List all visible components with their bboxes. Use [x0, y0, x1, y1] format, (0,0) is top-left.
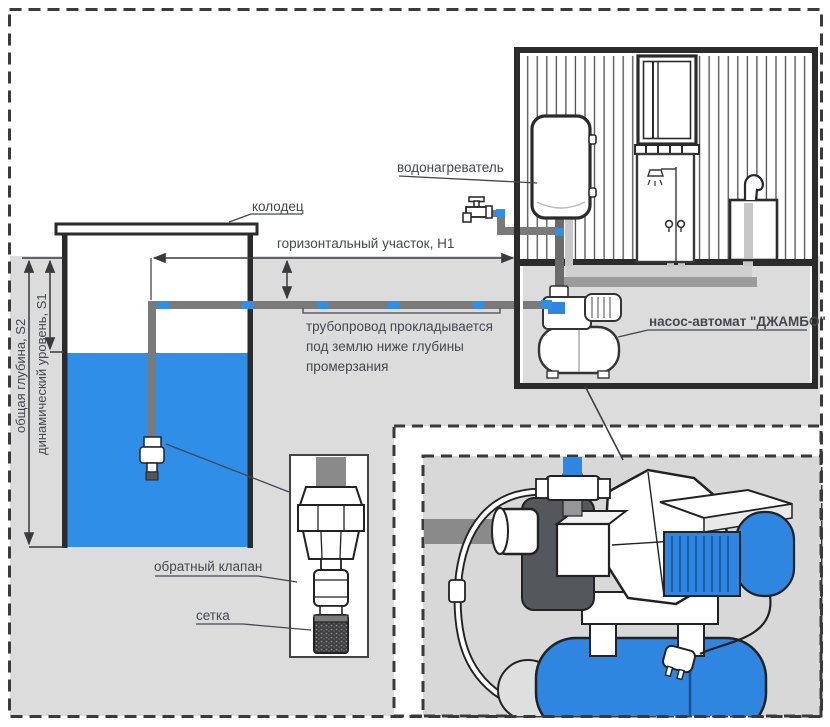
label-dynamic-level: динамический уровень, S1 [34, 293, 49, 455]
detail-motor-endcap [736, 512, 794, 596]
well-wall-right [248, 233, 254, 548]
heater-pipe-blue-mark [555, 228, 564, 236]
water-heater [532, 116, 596, 218]
detail-pressure-tank [536, 638, 766, 727]
label-pump-station: насос-автомат "ДЖАМБО" [649, 314, 826, 329]
house [463, 47, 818, 389]
label-pipeline-note-2: под землю ниже глубины [306, 339, 464, 354]
cv-fitting-body [298, 505, 364, 531]
label-pipeline-note-1: трубопровод прокладывается [306, 319, 493, 334]
diagram-canvas: колодец водонагреватель горизонтальный у… [0, 0, 830, 727]
label-total-depth: общая глубина, S2 [13, 319, 28, 433]
label-pipeline-note-3: промерзания [306, 359, 388, 374]
cv-mesh-rib [314, 615, 348, 622]
label-mesh: сетка [196, 608, 230, 623]
window [635, 56, 699, 154]
label-check-valve: обратный клапан [154, 559, 262, 574]
cv-neck-2 [320, 606, 342, 615]
detail-inlet-pipe [422, 519, 502, 544]
faucet-blue-mark [496, 209, 505, 217]
detail-stand-leg-left [590, 622, 616, 656]
detail-hose-coupling [449, 580, 465, 602]
detail-nozzle-box [557, 524, 609, 576]
underfloor-pipe-hot [559, 277, 757, 287]
faucet-wall-pipe [497, 227, 559, 235]
label-water-heater: водонагреватель [397, 160, 504, 175]
pump-detail-callout [394, 426, 821, 727]
well [56, 224, 257, 548]
pump-motor [585, 294, 621, 321]
label-horizontal-section: горизонтальный участок, H1 [277, 236, 454, 251]
sink-inner-pipe [744, 203, 753, 258]
cv-fitting-nut [303, 531, 359, 559]
window-sill [635, 145, 699, 154]
well-wall-left [62, 233, 68, 548]
detail-inlet-fitting-face [492, 508, 508, 554]
water-supply-diagram: колодец водонагреватель горизонтальный у… [0, 0, 830, 727]
detail-tee-fitting [546, 476, 600, 500]
detail-tee-collar-right [598, 479, 610, 498]
cv-valve-body [314, 570, 348, 606]
well-drop-pipe [148, 301, 156, 437]
heater-cold-pipe [565, 218, 573, 266]
well-interior [67, 235, 248, 355]
shower-stall [637, 154, 694, 262]
cv-neck [321, 559, 341, 570]
detail-outlet-pipe-blue [563, 457, 582, 475]
check-valve-callout [290, 455, 368, 657]
underfloor-pipe-cold [566, 265, 752, 277]
cv-pipe-stub [316, 457, 346, 488]
label-well: колодец [252, 199, 304, 214]
well-lid [56, 224, 257, 234]
detail-tee-collar-left [536, 479, 548, 498]
cv-fitting-cap [300, 487, 362, 505]
pump-inlet-blue-mark [541, 300, 552, 309]
